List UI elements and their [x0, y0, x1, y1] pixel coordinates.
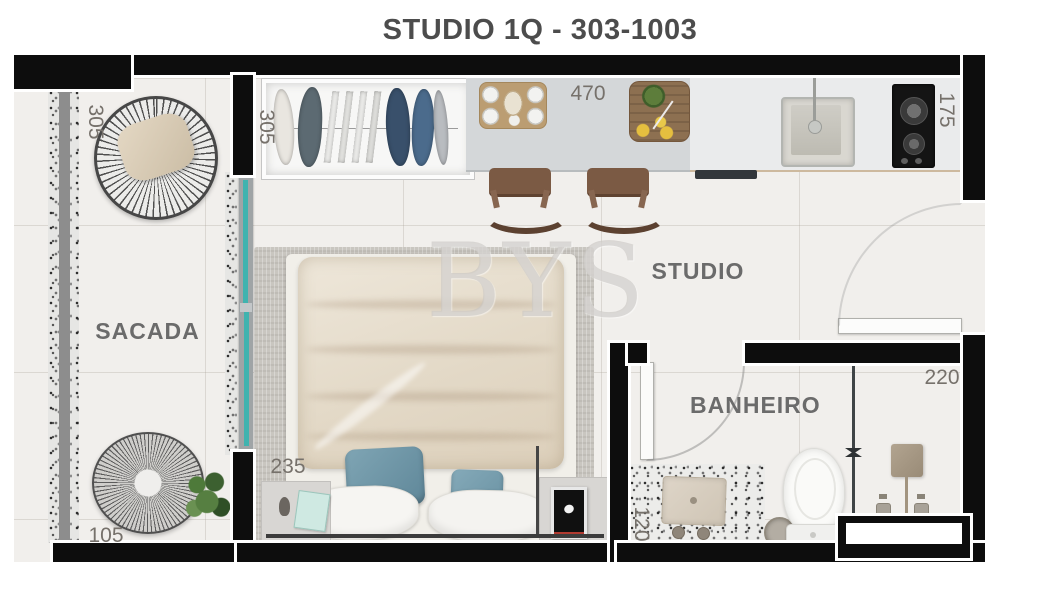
burner	[903, 133, 925, 155]
tap-knob	[697, 527, 710, 540]
room-label-balcony: SACADA	[95, 318, 200, 345]
cutting-board	[629, 81, 690, 142]
counter-front-panel	[695, 170, 757, 179]
wall-top	[14, 55, 985, 75]
sliding-door-jamb	[225, 172, 239, 455]
poster-art	[559, 500, 579, 519]
burner	[900, 97, 928, 125]
duvet-fold	[306, 345, 556, 354]
clothes-item	[338, 91, 354, 163]
clothes-item	[352, 91, 368, 163]
shower-stem	[905, 477, 908, 521]
floor-plan: STUDIO 1Q - 303-1003 470	[0, 0, 1050, 600]
room-label-bathroom: BANHEIRO	[690, 392, 818, 419]
dim-wardrobe: 305	[254, 97, 278, 157]
bottle-pump	[879, 494, 887, 499]
sink-drain	[690, 497, 697, 504]
sliding-door-glass	[243, 180, 248, 306]
watermark: BYS	[426, 222, 648, 341]
notebook	[294, 490, 331, 532]
plan-title: STUDIO 1Q - 303-1003	[30, 14, 1050, 47]
wall-bottom-studio	[237, 543, 617, 562]
clothes-item	[410, 88, 436, 166]
faucet	[813, 72, 816, 124]
duvet-fold	[306, 432, 556, 441]
wall-top-left-block	[14, 55, 131, 89]
cooktop-knob	[901, 158, 908, 164]
poster-frame	[551, 487, 587, 539]
stool-seat	[489, 168, 551, 197]
sliding-door-glass	[244, 310, 249, 446]
cooktop-knob	[915, 158, 922, 164]
dim-shower: 220	[916, 366, 968, 390]
shower-glass-divider	[852, 362, 855, 524]
window-glass	[846, 523, 962, 544]
clothes-item	[431, 90, 450, 166]
dim-bath-counter: 120	[629, 494, 653, 554]
deer-figurine	[279, 497, 290, 516]
dim-kitchen-counter: 470	[558, 82, 618, 106]
dim-balcony-width: 105	[80, 524, 132, 548]
floor-lamp-stem	[536, 446, 539, 536]
wall-balcony-divider-top	[233, 75, 253, 175]
clothes-item	[366, 91, 382, 163]
clothes-item	[324, 91, 340, 163]
dim-bed-wall: 235	[262, 455, 314, 479]
wall-bathroom-top-stub	[628, 343, 647, 363]
headboard-shelf	[266, 534, 604, 538]
dim-kitchen-depth: 175	[934, 80, 958, 140]
bar-stool	[480, 168, 560, 224]
bottle-pump	[917, 494, 925, 499]
stool-seat	[587, 168, 649, 197]
cooktop	[892, 84, 935, 168]
tap-knob	[672, 526, 685, 539]
duvet-fold	[306, 392, 556, 401]
wall-bathroom-left	[610, 343, 628, 562]
toilet-flush-button	[810, 532, 816, 538]
wall-bathroom-top	[745, 343, 963, 363]
serving-tray	[479, 82, 547, 129]
dim-balcony-length: 305	[83, 92, 107, 152]
plant	[182, 468, 232, 524]
balcony-railing-band	[59, 89, 70, 543]
wall-right-upper	[963, 55, 985, 200]
room-label-studio: STUDIO	[648, 258, 748, 285]
clothes-item	[385, 88, 412, 167]
sliding-door-handle	[240, 303, 252, 312]
shower-head	[891, 444, 923, 477]
faucet-handle	[808, 120, 822, 134]
clothes-item	[297, 87, 324, 168]
bar-stool	[578, 168, 658, 224]
wardrobe	[262, 79, 474, 179]
toilet-seat	[794, 458, 836, 520]
